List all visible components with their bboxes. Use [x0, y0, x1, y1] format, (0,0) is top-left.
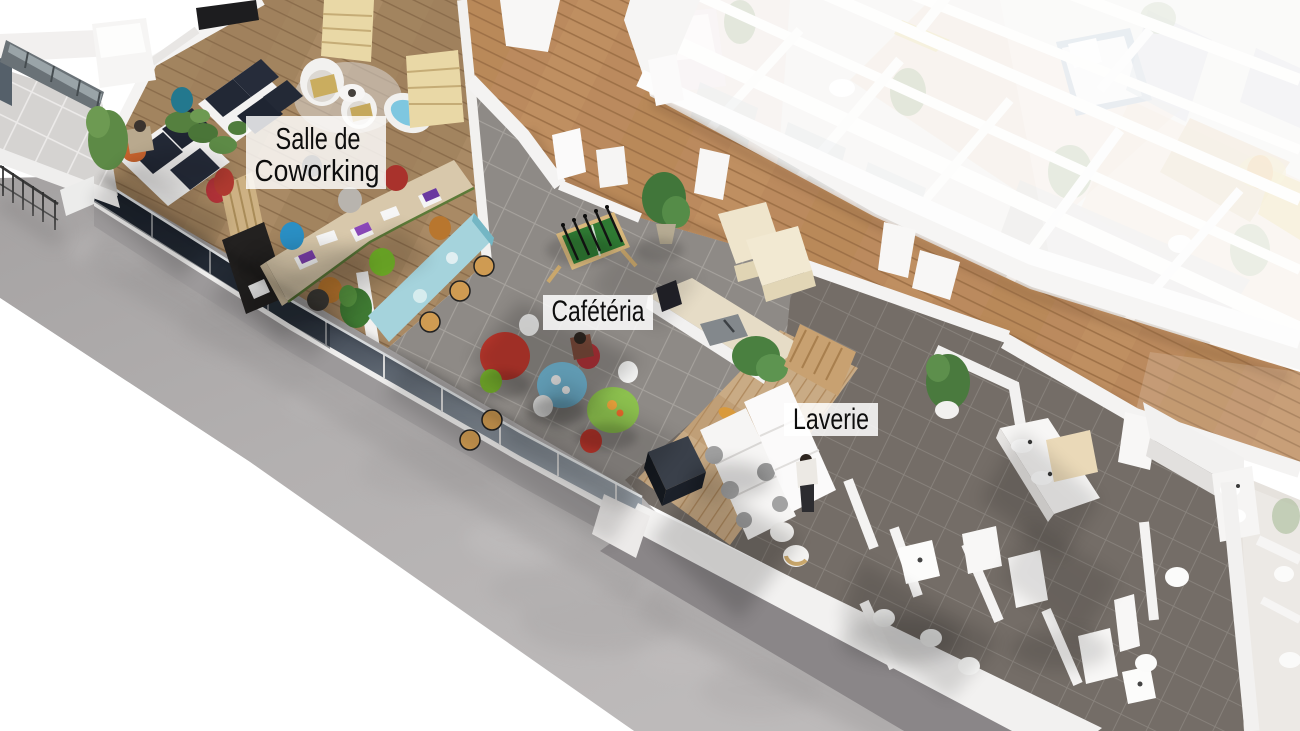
svg-text:Coworking: Coworking [255, 153, 380, 188]
svg-text:Salle de: Salle de [276, 121, 361, 156]
svg-text:Laverie: Laverie [793, 403, 869, 436]
svg-text:Cafétéria: Cafétéria [552, 295, 645, 328]
